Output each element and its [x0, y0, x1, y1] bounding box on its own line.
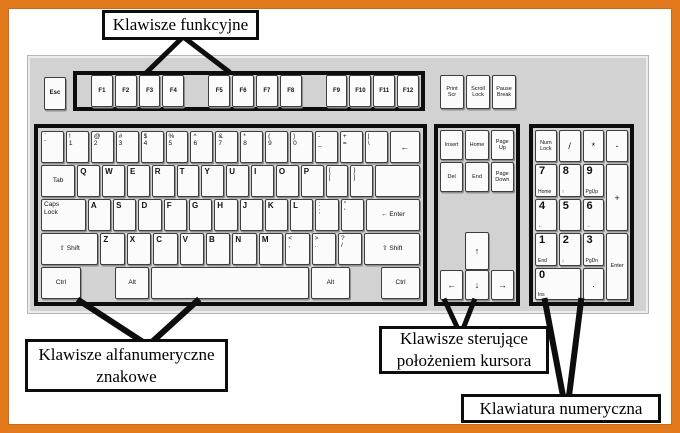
- callout-cursor-keys: Klawisze sterujące położeniem kursora: [379, 326, 549, 374]
- key-g: G: [189, 199, 212, 231]
- numpad-block: NumLock/*-7Home8↑9PgUp+4←56→1End2↓3PgDnE…: [529, 124, 634, 306]
- key-row: ``!1@2#3$4%5^6&7*8(9)0-_+=|\←: [41, 131, 420, 163]
- up-arrow-key-slot: ↑: [465, 232, 489, 270]
- key-sym: >.: [312, 233, 336, 265]
- key-7: &7: [215, 131, 238, 163]
- key-5: %5: [166, 131, 189, 163]
- callout-cursor-line1: Klawisze sterujące: [400, 328, 528, 350]
- callout-alphanumeric-keys: Klawisze alfanumeryczne znakowe: [25, 339, 228, 392]
- key-numpad-2: 2↓: [559, 233, 581, 265]
- key-s: S: [113, 199, 136, 231]
- key-0: )0: [290, 131, 313, 163]
- key-c: C: [153, 233, 177, 265]
- key-2: @2: [91, 131, 114, 163]
- key-numpad-9: 9PgUp: [583, 164, 605, 196]
- key-f: F: [164, 199, 187, 231]
- key-enter: Enter: [606, 233, 628, 300]
- key-numpad-8: 8↑: [559, 164, 581, 196]
- key-alt: Alt: [311, 267, 350, 299]
- key-4: $4: [141, 131, 164, 163]
- key-ctrl: Ctrl: [381, 267, 420, 299]
- key-p: P: [301, 165, 324, 197]
- key-f3: F3: [139, 75, 161, 107]
- keyboard-diagram: Esc F1F2F3F4F5F6F7F8F9F10F11F12 PrintScr…: [0, 0, 680, 433]
- callout-function-keys-text: Klawisze funkcyjne: [113, 14, 248, 36]
- key-numpad-4: 4←: [535, 199, 557, 231]
- key-f6: F6: [232, 75, 254, 107]
- key-ctrl: Ctrl: [41, 267, 81, 299]
- key-z: Z: [100, 233, 124, 265]
- key-page-up: PageUp: [491, 130, 514, 160]
- key-numpad-3: 3PgDn: [583, 233, 605, 265]
- callout-alphanumeric-line2: znakowe: [96, 366, 156, 388]
- pointer-line: [569, 301, 581, 396]
- key-h: H: [214, 199, 237, 231]
- key-print-scr: PrintScr: [440, 75, 464, 109]
- key-u: U: [226, 165, 249, 197]
- key-sym: ←: [440, 270, 463, 300]
- cursor-keys-top-grid: InsertHomePageUpDelEndPageDown: [440, 130, 514, 192]
- key-x: X: [127, 233, 151, 265]
- key-sym: +: [606, 164, 628, 231]
- key-3: #3: [116, 131, 139, 163]
- key-8: *8: [240, 131, 263, 163]
- key-shift: ⇧ Shift: [41, 233, 98, 265]
- key-f11: F11: [373, 75, 395, 107]
- key-enter: ← Enter: [366, 199, 420, 231]
- key-1: !1: [66, 131, 89, 163]
- cursor-keys-block: InsertHomePageUpDelEndPageDown ↑ ←↓→: [434, 124, 520, 306]
- callout-alphanumeric-line1: Klawisze alfanumeryczne: [38, 344, 214, 366]
- key-tab: Tab: [41, 165, 75, 197]
- key-gap: [352, 267, 379, 299]
- system-keys-group: PrintScrScrollLockPauseBreak: [440, 75, 516, 109]
- key-sym: -_: [315, 131, 338, 163]
- key-row: CtrlAltAltCtrl: [41, 267, 420, 299]
- key-gap: [83, 267, 113, 299]
- key-home: Home: [465, 130, 488, 160]
- key-alt: Alt: [115, 267, 149, 299]
- cursor-keys-bottom-row: ←↓→: [440, 270, 514, 300]
- key-del: Del: [440, 162, 463, 192]
- callout-numeric-keypad: Klawiatura numeryczna: [461, 394, 661, 423]
- key-pause-break: PauseBreak: [492, 75, 516, 109]
- key-sym: /: [559, 130, 581, 162]
- function-group-gap: [304, 75, 324, 107]
- key-row: ⇧ ShiftZXCVBNM<,>.?/⇧ Shift: [41, 233, 420, 265]
- esc-key-slot: Esc: [44, 77, 66, 110]
- key-numpad-0: 0Ins: [535, 268, 581, 300]
- key-n: N: [232, 233, 256, 265]
- key-m: M: [259, 233, 283, 265]
- key-f4: F4: [162, 75, 184, 107]
- key-sym: ``: [41, 131, 64, 163]
- key-blank: [375, 165, 420, 197]
- keyboard-body: Esc F1F2F3F4F5F6F7F8F9F10F11F12 PrintScr…: [28, 56, 648, 313]
- key-f2: F2: [115, 75, 137, 107]
- key-sym: "': [341, 199, 364, 231]
- key-sym: *: [583, 130, 605, 162]
- key-f5: F5: [208, 75, 230, 107]
- callout-function-keys: Klawisze funkcyjne: [102, 10, 259, 40]
- key-v: V: [180, 233, 204, 265]
- key-q: Q: [77, 165, 100, 197]
- key-sym: ?/: [338, 233, 362, 265]
- key-sym: :;: [315, 199, 338, 231]
- key-l: L: [290, 199, 313, 231]
- key-e: E: [127, 165, 150, 197]
- key-r: R: [152, 165, 175, 197]
- key-k: K: [265, 199, 288, 231]
- key-esc: Esc: [44, 77, 66, 110]
- key-sym: |\: [365, 131, 388, 163]
- function-keys-block: F1F2F3F4F5F6F7F8F9F10F11F12: [73, 71, 425, 111]
- key-sym: .: [583, 268, 605, 300]
- key-caps-lock: CapsLock: [41, 199, 86, 231]
- key-9: (9: [265, 131, 288, 163]
- key-numpad-5: 5: [559, 199, 581, 231]
- key-i: I: [251, 165, 274, 197]
- callout-numeric-keypad-text: Klawiatura numeryczna: [480, 398, 643, 420]
- key-f12: F12: [397, 75, 419, 107]
- key-w: W: [102, 165, 125, 197]
- key-f8: F8: [280, 75, 302, 107]
- key-b: B: [206, 233, 230, 265]
- key-shift: ⇧ Shift: [364, 233, 420, 265]
- key-t: T: [177, 165, 200, 197]
- key-scroll-lock: ScrollLock: [466, 75, 490, 109]
- key-a: A: [88, 199, 111, 231]
- key-sym: }]: [350, 165, 373, 197]
- key-numpad-6: 6→: [583, 199, 605, 231]
- key-o: O: [276, 165, 299, 197]
- key-f9: F9: [326, 75, 348, 107]
- key-page-down: PageDown: [491, 162, 514, 192]
- key-sym: -: [606, 130, 628, 162]
- key-sym: {[: [326, 165, 349, 197]
- key-j: J: [240, 199, 263, 231]
- key-sym: ↓: [465, 270, 488, 300]
- key-sym: ←: [390, 131, 420, 163]
- key-6: ^6: [190, 131, 213, 163]
- key-numpad-1: 1End: [535, 233, 557, 265]
- key-row: CapsLockASDFGHJKL:;"'← Enter: [41, 199, 420, 231]
- alphanumeric-block: ``!1@2#3$4%5^6&7*8(9)0-_+=|\←TabQWERTYUI…: [34, 124, 427, 306]
- key-f1: F1: [91, 75, 113, 107]
- function-group-gap: [186, 75, 206, 107]
- key-sym: <,: [285, 233, 309, 265]
- key-row: TabQWERTYUIOP{[}]: [41, 165, 420, 197]
- key-sym: ↑: [465, 232, 489, 270]
- key-blank: [151, 267, 309, 299]
- key-end: End: [465, 162, 488, 192]
- key-d: D: [138, 199, 161, 231]
- key-f10: F10: [349, 75, 371, 107]
- callout-cursor-line2: położeniem kursora: [397, 350, 532, 372]
- key-num-lock: NumLock: [535, 130, 557, 162]
- key-y: Y: [201, 165, 224, 197]
- key-numpad-7: 7Home: [535, 164, 557, 196]
- key-sym: →: [491, 270, 514, 300]
- key-insert: Insert: [440, 130, 463, 160]
- key-sym: +=: [340, 131, 363, 163]
- key-f7: F7: [256, 75, 278, 107]
